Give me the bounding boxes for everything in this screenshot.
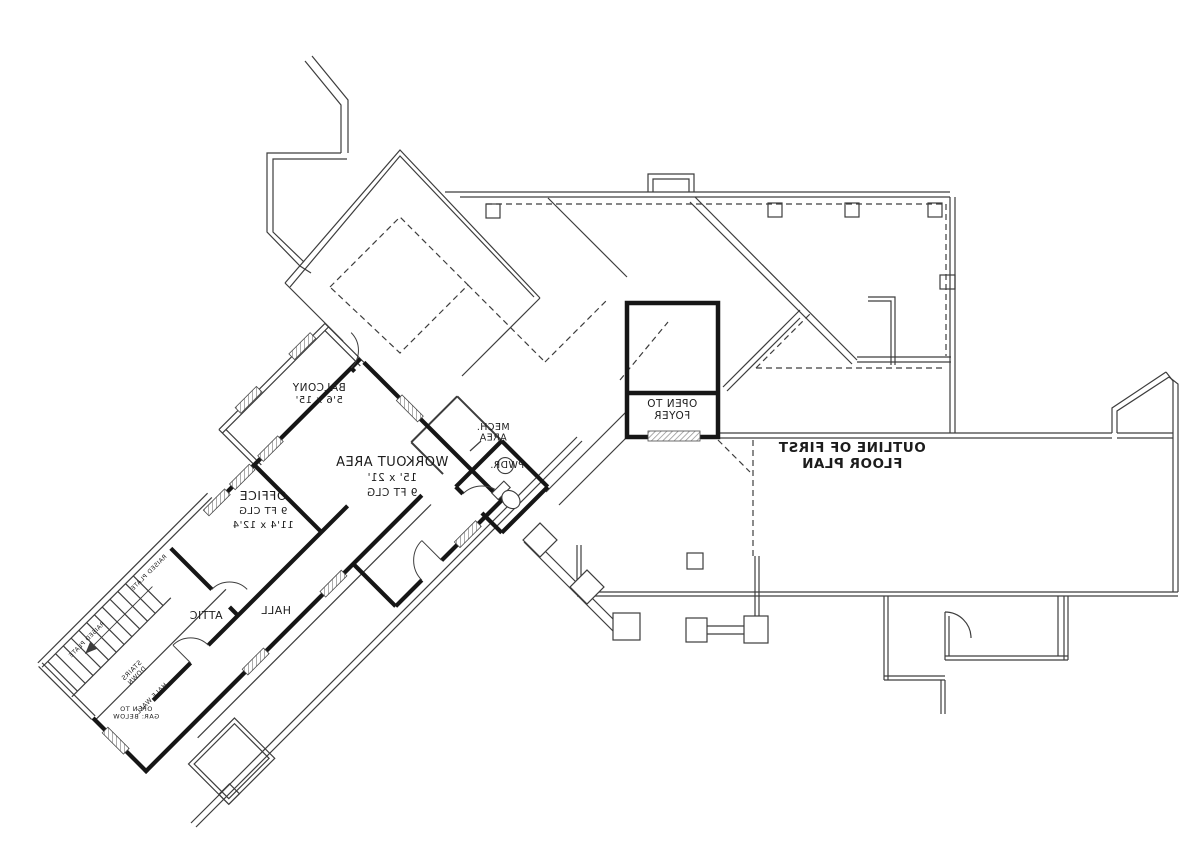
window-hatch: [102, 727, 129, 754]
balcony-label: BALCONY5'6 x 15': [292, 382, 346, 406]
foyer-railing-hatch: [648, 431, 700, 441]
stairs-down-label: STAIRSDOWN: [120, 659, 149, 688]
wall-attic-office: [171, 548, 212, 589]
raised-plate-wall: [38, 493, 208, 663]
window-hatch: [289, 333, 316, 360]
door-arc-workout: [402, 541, 442, 581]
roof-diamond: [285, 150, 608, 376]
window-hatch: [454, 521, 481, 548]
open-to-foyer-label: OPEN TOFOYER: [647, 398, 698, 422]
right-roof: [548, 197, 955, 433]
first-floor-outline: [191, 56, 1178, 827]
window-square: [928, 203, 942, 217]
bay-chimney-outline: [267, 56, 348, 273]
window-hatch: [396, 395, 423, 422]
window-square: [687, 553, 703, 569]
window-hatch: [230, 464, 255, 489]
deck-posts: [523, 440, 768, 643]
window-square: [845, 203, 859, 217]
pwdr-label: PWDR.: [490, 460, 524, 471]
floor-plan-sheet: { "plan": { "colors": { "background": "#…: [0, 0, 1200, 867]
attic-label: ATTIC: [189, 609, 222, 622]
window-hatch: [258, 436, 283, 461]
wall-workout-s: [396, 580, 422, 606]
floor-plan-svg: WORKOUT AREA15' x 21'9 FT CLGOFFICE9 FT …: [0, 0, 1200, 867]
workout-area-label: WORKOUT AREA15' x 21'9 FT CLG: [336, 455, 449, 499]
bottom-right-outline: [577, 545, 1178, 714]
window-square: [486, 204, 500, 218]
open-to-gar-below-label: OPEN TOGAR: BELOW: [113, 705, 160, 721]
window-square: [940, 275, 955, 289]
door-arc-attic: [173, 628, 208, 663]
wing-windows: [6, 318, 507, 819]
stairs-direction-arrow: [85, 587, 152, 654]
window-hatch: [235, 386, 262, 413]
deck-post: [570, 570, 604, 604]
door-arc-office: [212, 572, 247, 607]
window-square: [768, 203, 782, 217]
raised-plate-upper-label: RAISED PLATE: [129, 553, 168, 592]
porch-band: [180, 504, 480, 804]
deck-post: [523, 523, 557, 557]
top-outline: [445, 174, 955, 289]
deck-post: [613, 613, 640, 640]
mech-area-label: MECH.AREA: [476, 422, 509, 444]
porch-post: [744, 616, 768, 643]
outline-first-floor-label: OUTLINE OF FIRSTFLOOR PLAN: [778, 440, 926, 472]
stairs: [42, 568, 171, 697]
wall-workout-step: [353, 564, 395, 606]
porch-post: [686, 618, 707, 642]
hall-label: HALL: [261, 604, 291, 617]
office-label: OFFICE9 FT CLG11'4 x 12'4: [232, 488, 293, 531]
outline-long-edge: [716, 372, 1178, 592]
